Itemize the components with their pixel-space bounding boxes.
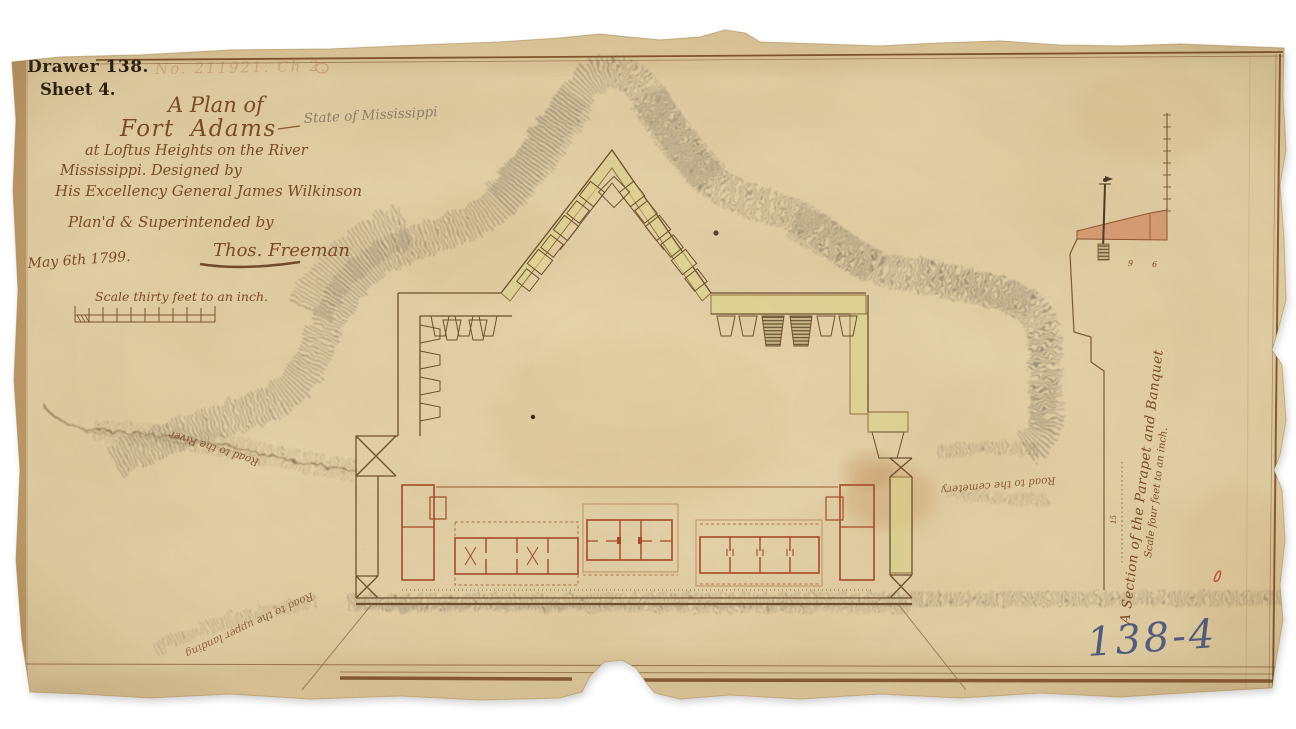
fort-adams-plan-svg: Drawer 138. Sheet 4. No. 211921. Ch 2. A… — [0, 0, 1296, 729]
paper-contents: Drawer 138. Sheet 4. No. 211921. Ch 2. A… — [0, 0, 1296, 729]
edge-vignette — [0, 0, 1296, 729]
scanned-map-page: Drawer 138. Sheet 4. No. 211921. Ch 2. A… — [0, 0, 1296, 729]
